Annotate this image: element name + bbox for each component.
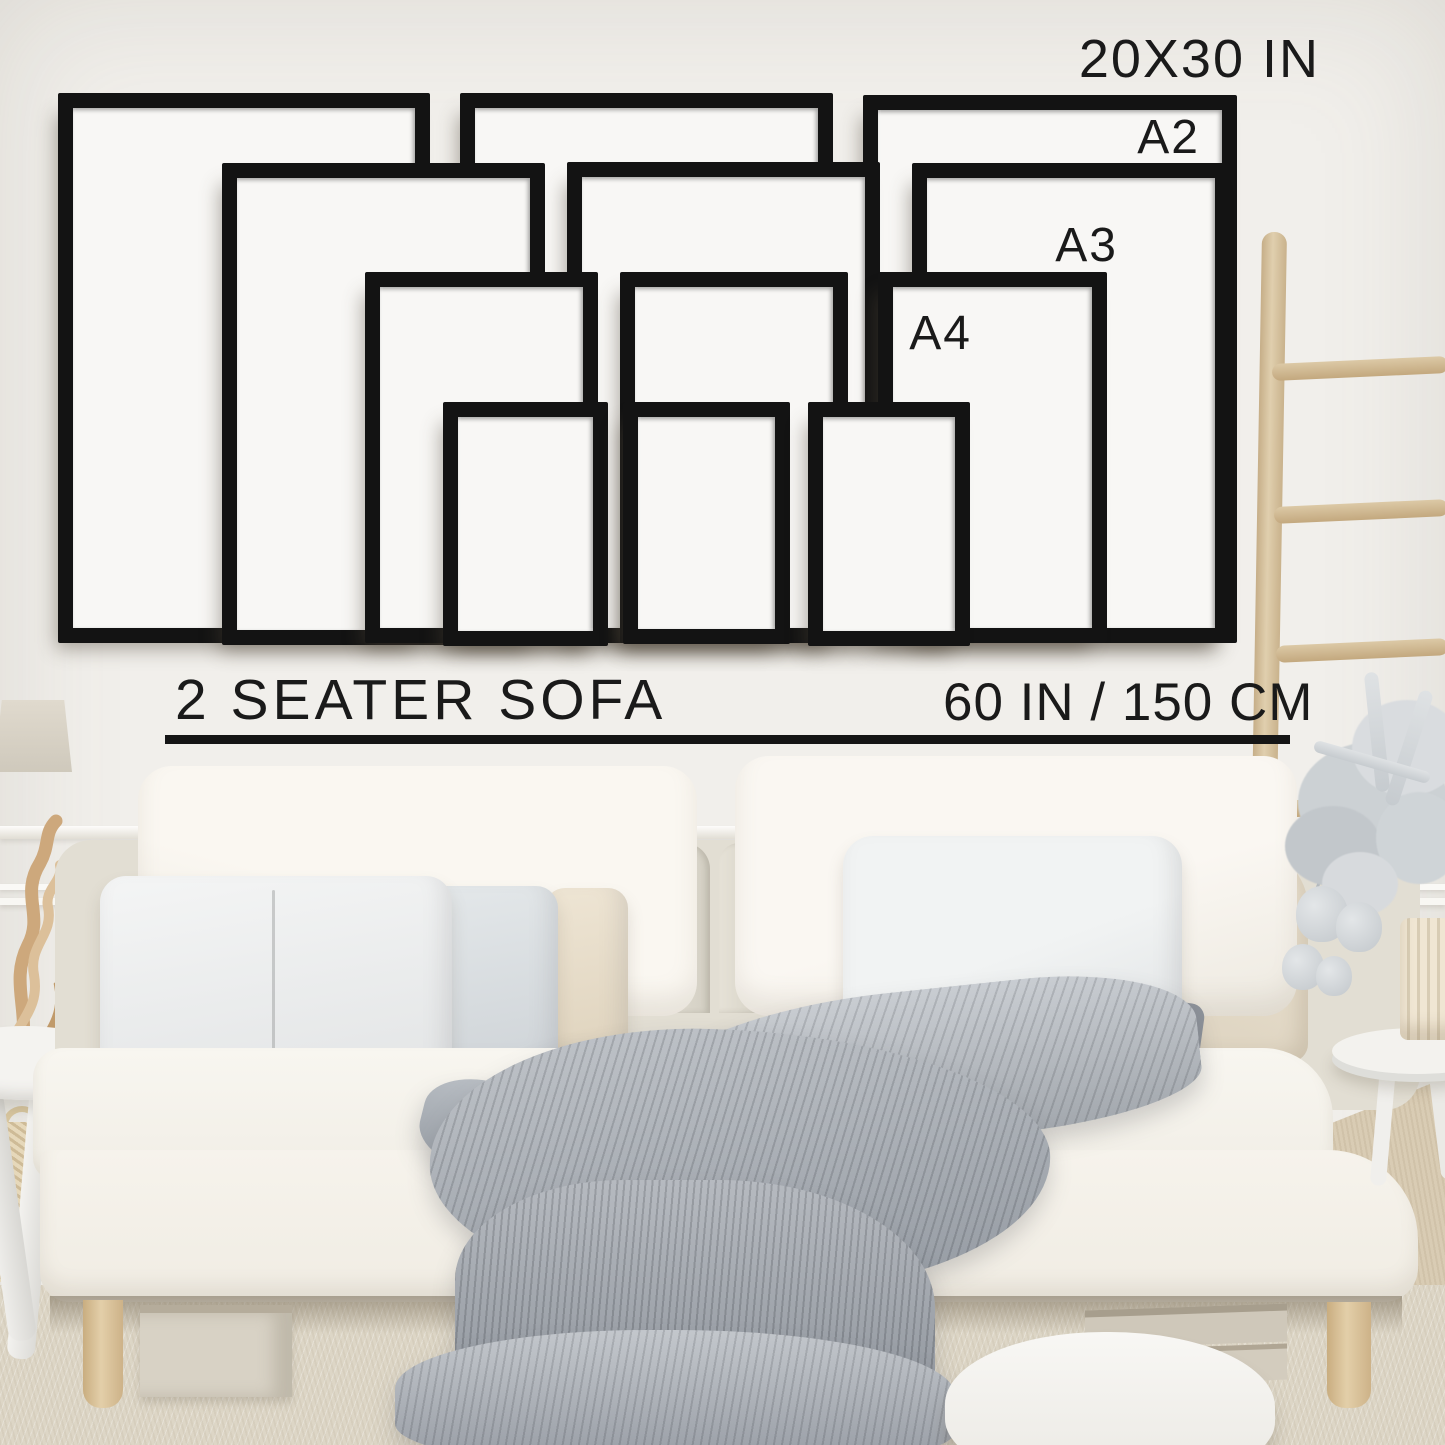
sofa-leg-left bbox=[83, 1300, 123, 1408]
frame-a4-left bbox=[443, 402, 608, 646]
size-guide-scene: 20X30 IN A2 A3 A4 2 SEATER SOFA 60 IN / … bbox=[0, 0, 1445, 1445]
frame-a4-right bbox=[808, 402, 970, 646]
size-label-a4: A4 bbox=[775, 310, 972, 358]
ribbed-vase bbox=[1400, 918, 1445, 1040]
sofa-width-underline bbox=[165, 735, 1290, 744]
storage-box-under-sofa-left bbox=[140, 1305, 292, 1397]
size-label-20x30: 20X30 IN bbox=[1020, 32, 1320, 86]
size-label-a2: A2 bbox=[1000, 114, 1200, 162]
sofa-width-label: 60 IN / 150 CM bbox=[943, 676, 1243, 729]
sofa-label: 2 SEATER SOFA bbox=[175, 672, 666, 729]
sofa-leg-right bbox=[1327, 1302, 1371, 1408]
frame-a4-middle bbox=[623, 402, 790, 644]
plant-hanging-leaf bbox=[1316, 956, 1352, 996]
size-label-a3: A3 bbox=[920, 222, 1118, 270]
plant-hanging-leaf bbox=[1336, 902, 1382, 952]
